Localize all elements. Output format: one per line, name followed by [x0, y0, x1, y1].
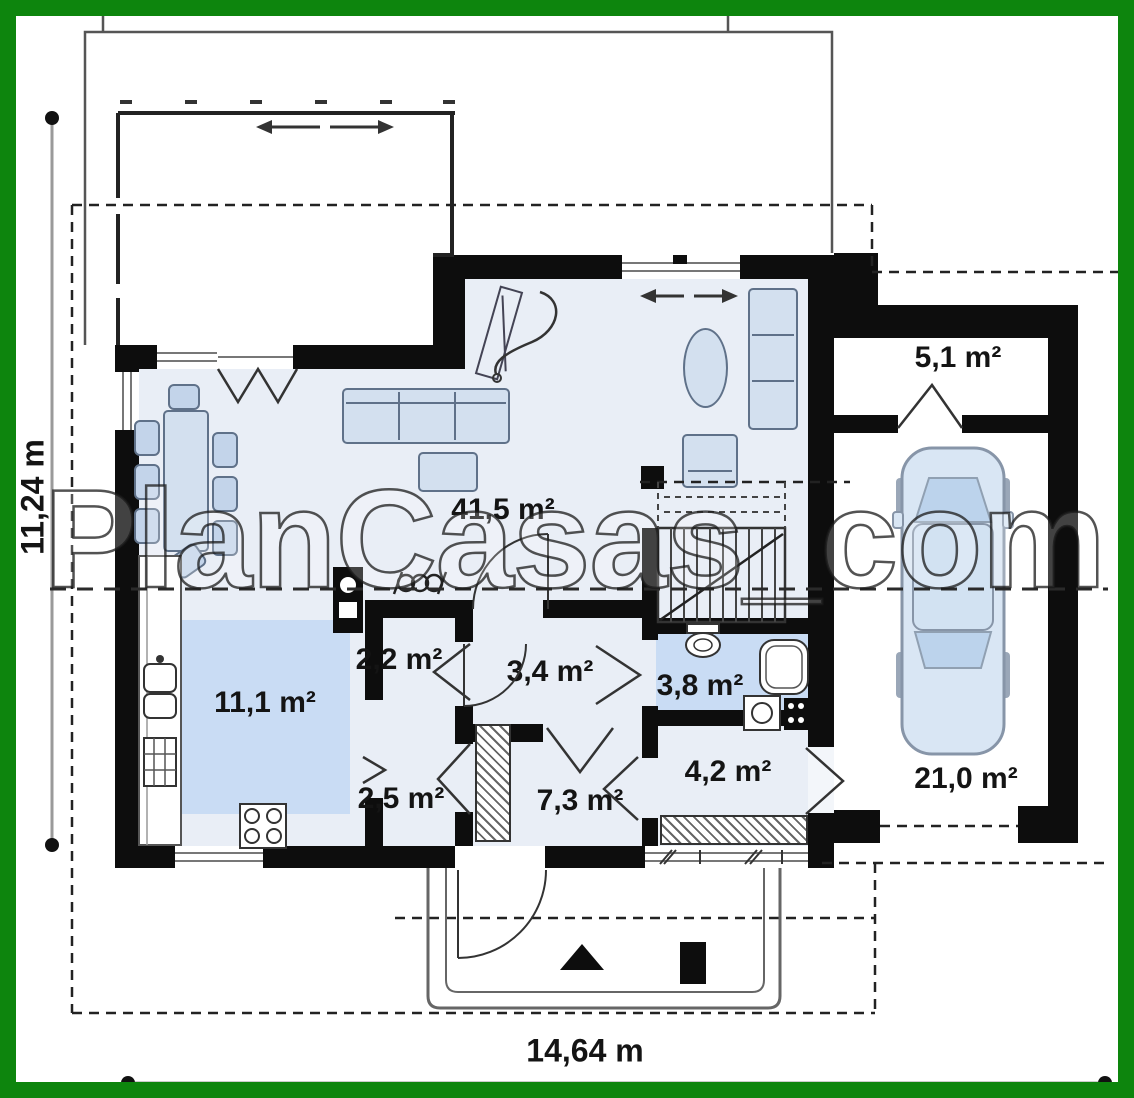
floor-plan: 41,5 m² 5,1 m² 11,1 m² 2,2 m² 3,4 m² 3,8…: [0, 0, 1134, 1098]
green-border: [0, 0, 1134, 1098]
